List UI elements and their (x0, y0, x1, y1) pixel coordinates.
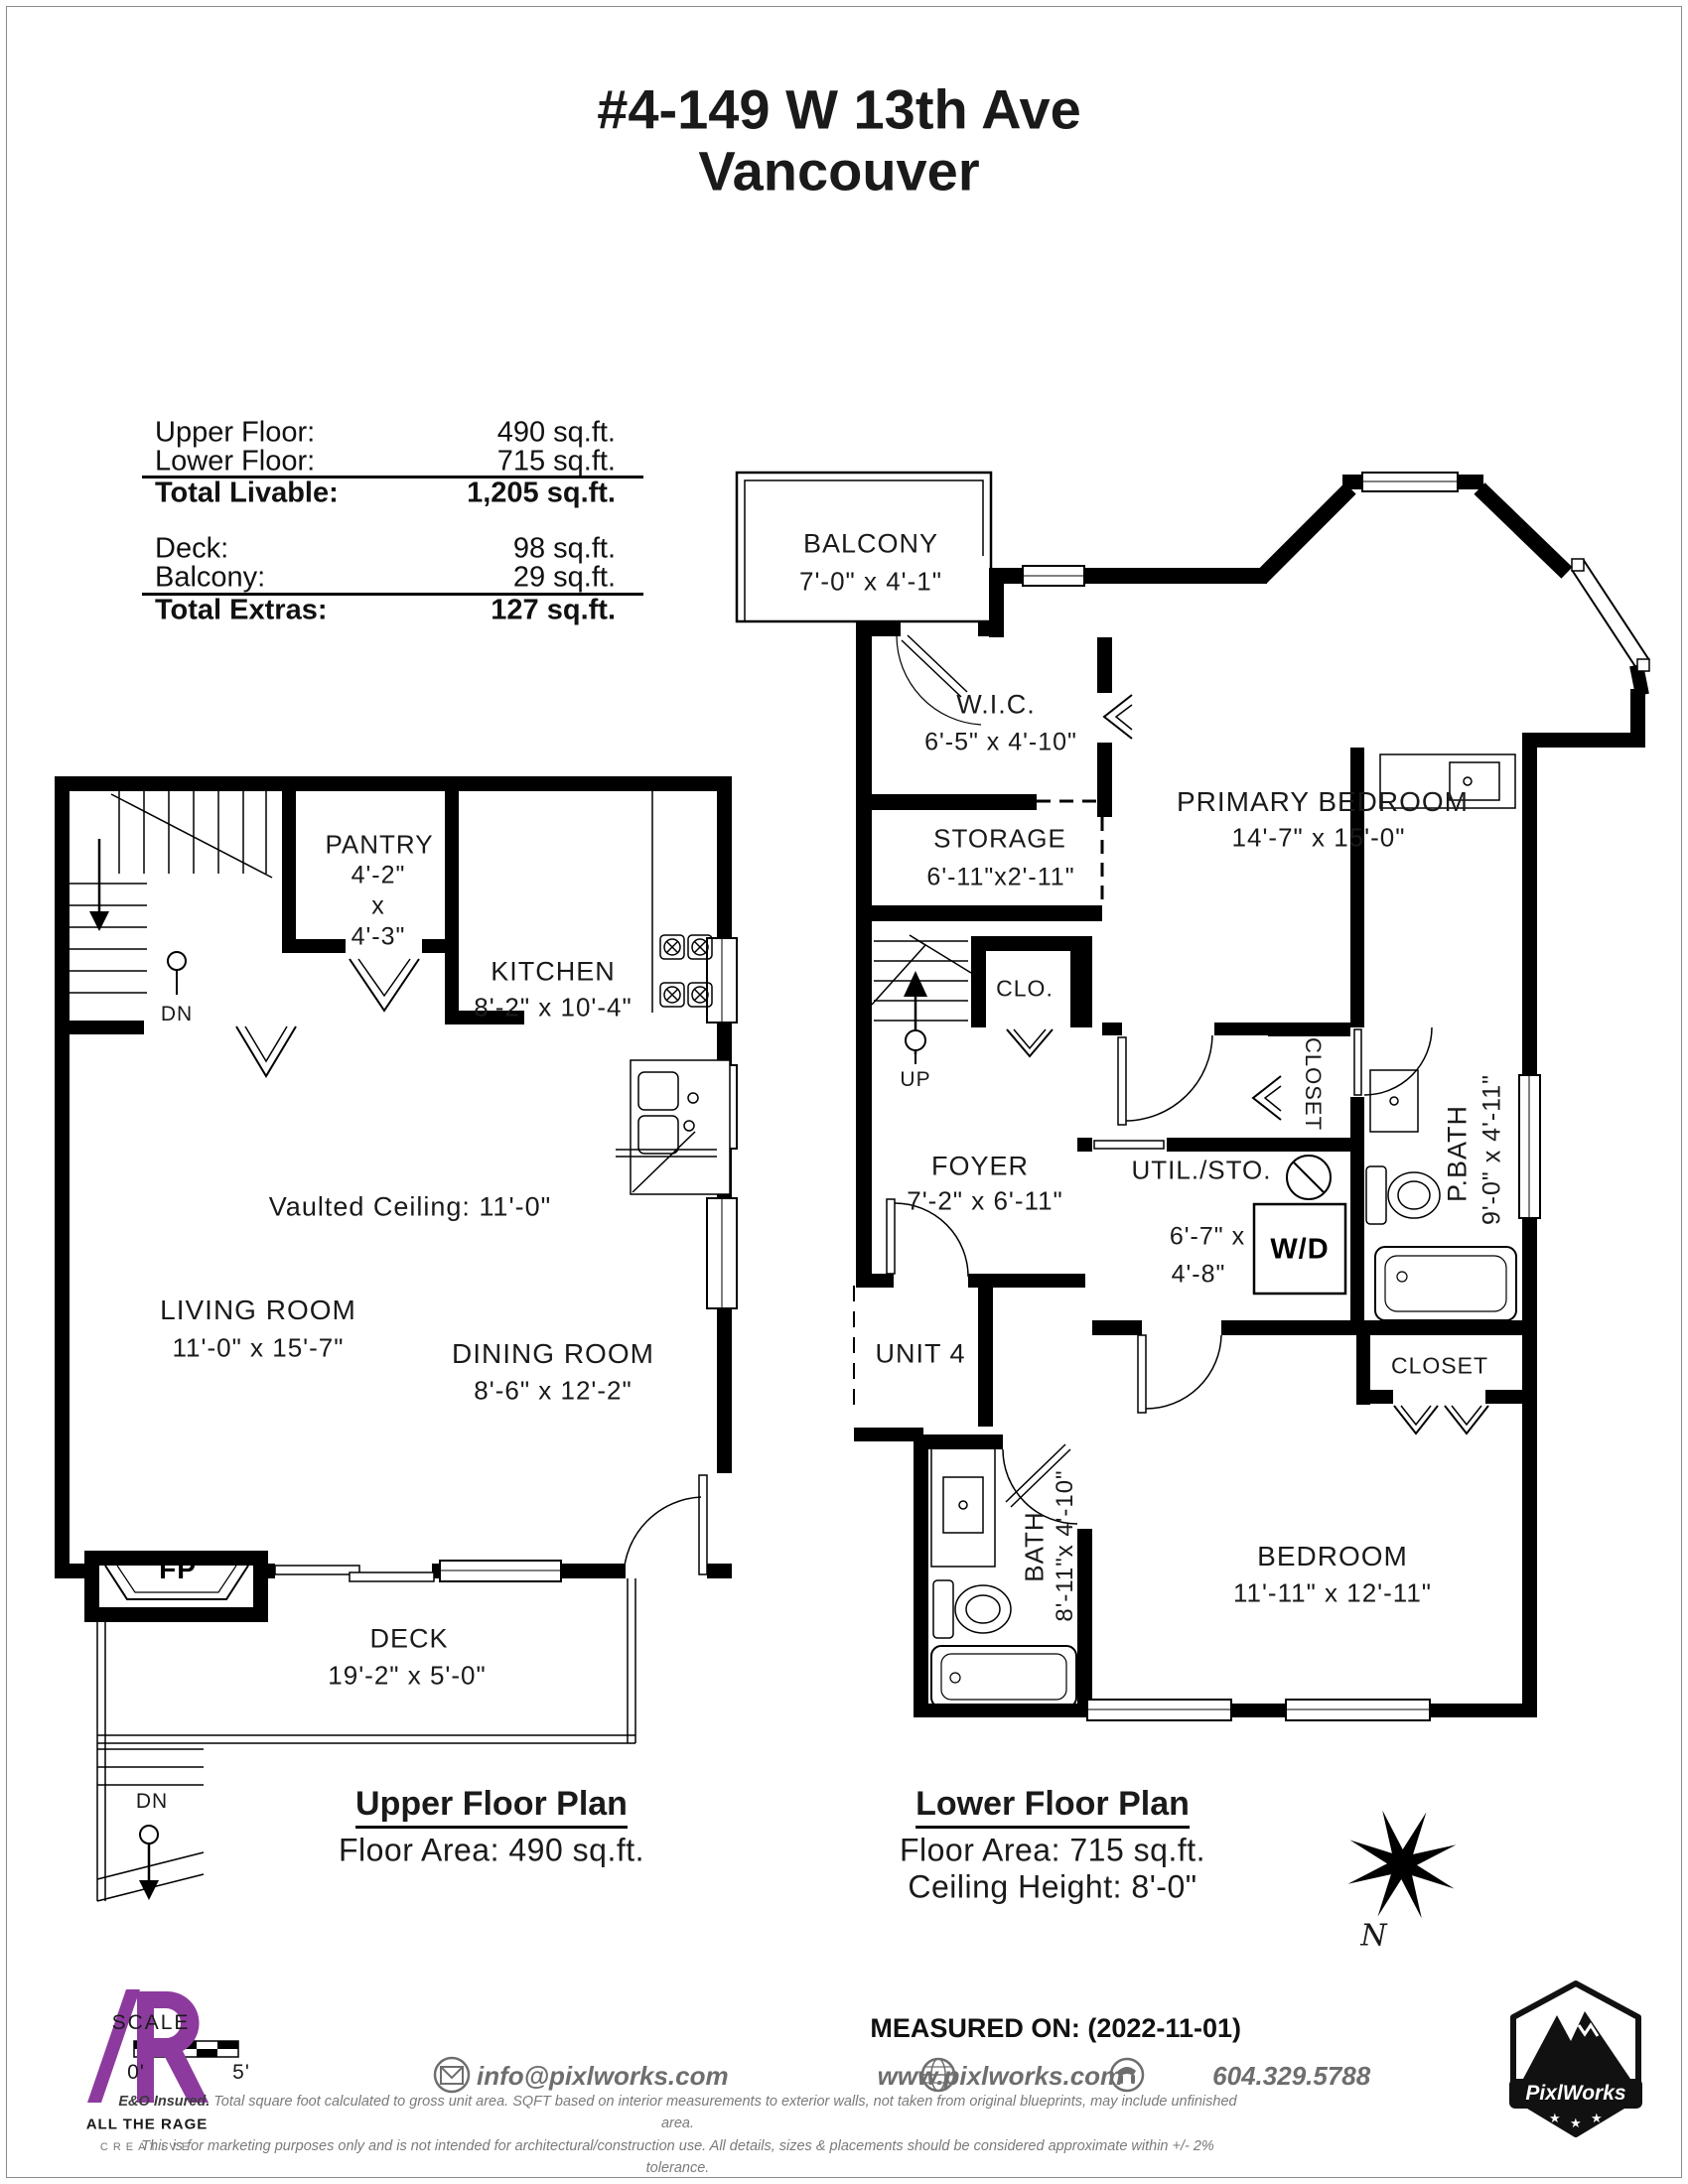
room-dims-util: 6'-7" x (1170, 1223, 1245, 1252)
unit-entry-label: UNIT 4 (875, 1339, 965, 1370)
phone-text: 604.329.5788 (1212, 2061, 1370, 2092)
room-dims-pantry: x (371, 892, 385, 921)
contact-website: www.pixlworks.com (878, 2061, 1124, 2092)
room-label-util: UTIL./STO. (1132, 1156, 1272, 1186)
stove-icon (652, 791, 712, 1013)
room-label-pbath: P.BATH (1443, 1105, 1474, 1202)
disclaimer-line2: This is for marketing purposes only and … (141, 2138, 1214, 2176)
area-row-label: Lower Floor: (155, 446, 315, 478)
room-dims-pantry: 4'-2" (352, 862, 406, 890)
stairs-dn-label: DN (161, 1003, 193, 1026)
property-address: #4-149 W 13th Ave (597, 77, 1081, 142)
lower-plan-ceiling: Ceiling Height: 8'-0" (908, 1869, 1196, 1906)
deck-stairs-icon (97, 1749, 204, 1901)
room-dims-deck: 19'-2" x 5'-0" (328, 1661, 486, 1692)
room-dims-storage: 6'-11"x2'-11" (926, 864, 1074, 892)
room-dims-dining: 8'-6" x 12'-2" (474, 1376, 632, 1407)
floor-plan-sheet: ★ ★ ★ #4-149 W 13th Ave Vancouver Upper … (0, 0, 1688, 2184)
room-dims-wic: 6'-5" x 4'-10" (924, 729, 1077, 757)
room-label-dining: DINING ROOM (452, 1338, 654, 1370)
lower-plan-title: Lower Floor Plan (915, 1785, 1190, 1829)
compass-rose-icon (1348, 1811, 1457, 1919)
room-label-balcony: BALCONY (803, 529, 938, 560)
disclaimer-line1: Total square foot calculated to gross un… (213, 2094, 1236, 2131)
room-label-kitchen: KITCHEN (491, 957, 616, 988)
pbath-toilet-icon (1366, 1166, 1440, 1224)
utility-circle-icon (1287, 1156, 1331, 1199)
room-dims-balcony: 7'-0" x 4'-1" (799, 567, 942, 598)
door-swings (887, 695, 1488, 1524)
area-total-label: Total Extras: (155, 595, 328, 627)
closet-label-clo: CLO. (996, 976, 1054, 1003)
closet-label-pbath: CLOSET (1300, 1037, 1326, 1131)
lower-stairs-icon (872, 935, 971, 1064)
area-total-label: Total Livable: (155, 478, 339, 510)
deck-door-swing (624, 1475, 707, 1576)
area-row-value: 29 sq.ft. (513, 562, 616, 595)
area-row-label: Balcony: (155, 562, 265, 595)
upper-windows (275, 938, 737, 1581)
room-dims-bath: 8'-11"x 4'-10" (1052, 1469, 1079, 1621)
floor-plan-drawing: ★ ★ ★ (0, 0, 1688, 2184)
room-dims-kitchen: 8'-2" x 10'-4" (474, 993, 632, 1024)
area-total-value: 1,205 sq.ft. (467, 478, 616, 510)
measured-on-label: MEASURED ON: (2022-11-01) (870, 2013, 1241, 2044)
scale-label: SCALE (112, 2011, 191, 2035)
scale-zero-label: 0' (127, 2061, 145, 2085)
stairs-up-label: UP (900, 1068, 930, 1092)
room-dims-living: 11'-0" x 15'-7" (173, 1333, 345, 1364)
scale-five-label: 5' (232, 2061, 250, 2085)
room-dims-pantry: 4'-3" (352, 923, 406, 952)
contact-row: info@pixlworks.com www.pixlworks.com 604… (433, 2059, 1247, 2093)
bay-windows (1023, 473, 1649, 1720)
upper-plan-area: Floor Area: 490 sq.ft. (339, 1833, 644, 1869)
compass-north-label: N (1360, 1919, 1387, 1954)
room-label-wic: W.I.C. (956, 690, 1036, 721)
room-label-foyer: FOYER (931, 1152, 1029, 1182)
room-dims-foyer: 7'-2" x 6'-11" (907, 1186, 1063, 1217)
contact-email: info@pixlworks.com (477, 2061, 729, 2092)
area-row-value: 715 sq.ft. (497, 446, 616, 478)
closet-label-bedroom: CLOSET (1391, 1353, 1488, 1380)
star-icon: ★ (1549, 2111, 1561, 2125)
deck-dn-label: DN (136, 1790, 168, 1814)
vaulted-ceiling-note: Vaulted Ceiling: 11'-0" (269, 1192, 551, 1223)
pixlworks-logo: ★ ★ ★ (1509, 1983, 1642, 2134)
room-label-bath: BATH (1020, 1511, 1051, 1581)
upper-plan-title: Upper Floor Plan (355, 1785, 628, 1829)
email-text: info@pixlworks.com (477, 2061, 729, 2092)
room-label-bedroom: BEDROOM (1257, 1541, 1408, 1572)
pixlworks-brand-label: PixlWorks (1525, 2082, 1625, 2106)
fireplace-label: FP (159, 1554, 197, 1585)
star-icon: ★ (1591, 2111, 1603, 2125)
room-label-primary-bedroom: PRIMARY BEDROOM (1177, 786, 1469, 818)
room-label-storage: STORAGE (933, 824, 1066, 855)
pbath-tub-icon (1375, 1247, 1516, 1320)
bath-toilet-icon (933, 1580, 1011, 1638)
property-city: Vancouver (698, 139, 979, 204)
disclaimer-lead: E&O Insured. (118, 2094, 210, 2110)
contact-phone: 604.329.5788 (1212, 2061, 1370, 2092)
pantry-door-icon (350, 959, 419, 1011)
bath-tub-icon (931, 1646, 1076, 1707)
room-dims-pbath: 9'-0" x 4'-11" (1478, 1074, 1507, 1225)
website-text: www.pixlworks.com (878, 2061, 1124, 2092)
room-dims-util: 4'-8" (1172, 1261, 1226, 1290)
room-label-deck: DECK (369, 1624, 448, 1655)
disclaimer-text: E&O Insured. Total square foot calculate… (109, 2091, 1246, 2180)
bath-vanity-icon (931, 1441, 995, 1567)
washer-dryer-label: W/D (1270, 1234, 1329, 1267)
kitchen-sink-icon (616, 1060, 730, 1194)
room-dims-primary-bedroom: 14'-7" x 15'-0" (1232, 823, 1406, 854)
area-total-value: 127 sq.ft. (491, 595, 616, 627)
room-dims-bedroom: 11'-11" x 12'-11" (1233, 1578, 1432, 1609)
lower-plan-area: Floor Area: 715 sq.ft. (900, 1833, 1205, 1869)
star-icon: ★ (1570, 2116, 1582, 2130)
room-label-pantry: PANTRY (325, 830, 433, 861)
room-label-living: LIVING ROOM (160, 1295, 356, 1326)
